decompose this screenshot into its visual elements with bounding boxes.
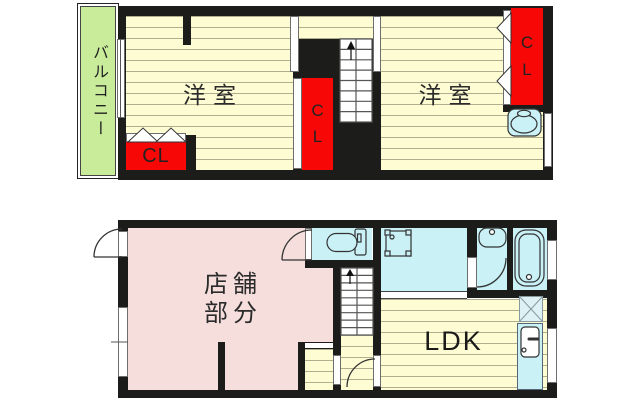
utility-room <box>381 228 467 291</box>
wall <box>118 220 557 228</box>
hall-opening <box>305 343 333 348</box>
wall <box>118 6 553 16</box>
utility-opening <box>381 291 467 299</box>
wall <box>118 390 557 398</box>
closet-door <box>293 78 302 169</box>
shop-label: 店舗部分 <box>128 258 333 342</box>
bedroom-right-label: 洋室 <box>381 16 509 170</box>
washroom-doorway <box>467 257 477 288</box>
washroom <box>477 228 507 290</box>
wall <box>118 170 553 180</box>
wall <box>298 342 305 390</box>
hallway <box>305 349 333 390</box>
wall <box>467 290 557 298</box>
stairs-up-icon <box>341 268 373 335</box>
window <box>547 328 557 383</box>
entrance-doorway <box>118 231 128 257</box>
window <box>118 307 128 377</box>
closet-middle-label: CL <box>302 78 333 170</box>
wall <box>503 105 553 112</box>
hall-opening <box>333 355 341 385</box>
wall <box>507 228 513 290</box>
sliding-door <box>373 16 381 72</box>
toilet-doorway <box>305 228 312 260</box>
toilet-room <box>312 228 372 260</box>
balcony-window <box>117 39 125 118</box>
ldk-label: LDK <box>381 299 526 384</box>
closet-right-label: CL <box>511 8 543 105</box>
window <box>547 240 557 280</box>
balcony-label: バルコニー <box>80 6 116 176</box>
bathroom <box>513 228 547 290</box>
stair-landing <box>341 335 373 390</box>
upper-hall <box>299 16 373 39</box>
window <box>544 113 552 167</box>
wall-stub <box>218 342 225 390</box>
closet-left-label: CL <box>126 142 186 170</box>
floor-plan: バルコニー 洋室 洋室 CL CL CL <box>0 0 640 400</box>
ldk-doorway <box>373 355 381 387</box>
